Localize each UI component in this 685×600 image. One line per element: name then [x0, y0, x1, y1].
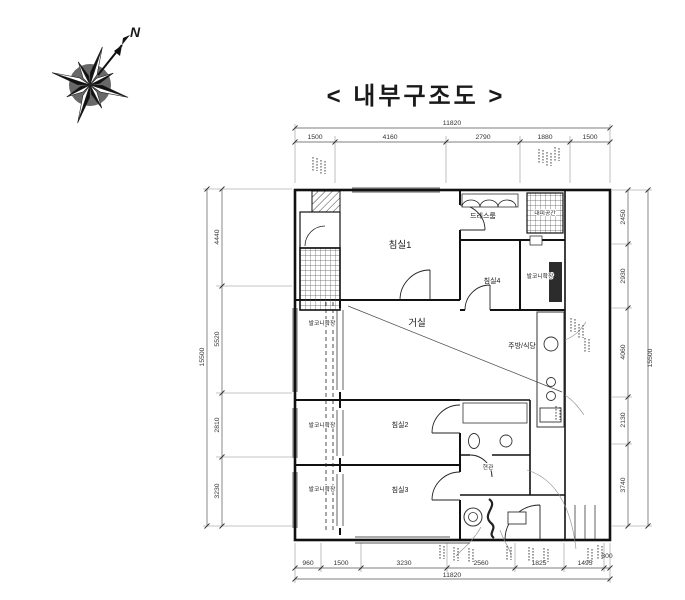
service-shafts — [300, 191, 563, 310]
dimension-lines — [207, 128, 648, 579]
dim-left-seg: 4440 — [214, 229, 221, 244]
balcony-dashed-lines — [326, 302, 333, 533]
page-title: < 내부구조도 > — [327, 83, 506, 110]
dim-top-seg: 2790 — [475, 134, 490, 141]
room-label-bedroom1: 침실1 — [389, 240, 412, 251]
toilet — [469, 434, 480, 449]
dim-right-seg: 4060 — [620, 344, 627, 359]
room-label-balcony-ext-right: 발코니확장 — [527, 272, 554, 280]
door-bedroom2 — [432, 405, 460, 433]
floorplan-page: N < 내부구조도 > 11820 1500 4160 2790 — [0, 0, 685, 600]
steps — [575, 505, 595, 540]
dim-left-total: 15500 — [199, 347, 206, 366]
room-label-kitchen: 주방/식당 — [508, 341, 536, 350]
door-bedroom1 — [400, 270, 430, 300]
wall — [295, 400, 460, 465]
dim-bottom-seg: 300 — [601, 553, 613, 560]
room-label-bedroom4: 침실4 — [484, 276, 501, 285]
pipe — [488, 499, 494, 538]
north-label: N — [130, 24, 141, 40]
dim-left-seg: 3230 — [214, 483, 221, 498]
washer-drum — [469, 513, 478, 522]
elevator-shaft — [300, 248, 340, 310]
fridge — [549, 262, 562, 302]
dim-top-seg: 1500 — [307, 134, 322, 141]
dim-bottom-seg: 1495 — [577, 560, 592, 567]
dim-top-seg: 1500 — [582, 134, 597, 141]
counter-unit — [540, 408, 561, 422]
room-label-dressroom: 드레스룸 — [470, 211, 496, 220]
fixtures — [348, 194, 595, 540]
dim-top: 11820 1500 4160 2790 1880 1500 — [307, 120, 597, 141]
north-arrow-icon: N — [98, 24, 141, 75]
door-bedroom4 — [465, 285, 490, 310]
dim-top-total: 11820 — [443, 120, 462, 127]
utility-cabinet — [508, 512, 526, 524]
sink — [544, 337, 558, 351]
room-label-balcony-ext-bed3: 발코니확장 — [309, 485, 336, 493]
duct — [530, 236, 542, 245]
room-label-balcony-ext-living: 발코니확장 — [309, 319, 336, 327]
dim-right: 15500 2450 2930 4060 2130 3740 — [620, 209, 654, 492]
dimension-ticks — [205, 126, 651, 582]
dim-left: 15500 4440 5520 2810 3230 — [199, 229, 221, 498]
dim-left-seg: 2810 — [214, 417, 221, 432]
room-label-refuge: 대피공간 — [534, 209, 556, 217]
dim-right-seg: 2930 — [620, 268, 627, 283]
dim-right-total: 15500 — [647, 348, 654, 367]
dim-bottom-seg: 1500 — [333, 560, 348, 567]
room-label-living: 거실 — [408, 318, 425, 329]
door-bedroom3 — [432, 472, 460, 500]
dim-right-seg: 2450 — [620, 209, 627, 224]
dim-top-seg: 1880 — [537, 134, 552, 141]
dim-top-seg: 4160 — [382, 134, 397, 141]
dim-right-seg: 2130 — [620, 412, 627, 427]
room-label-balcony-ext-bed2: 발코니확장 — [309, 421, 336, 429]
floorplan-drawing: N < 내부구조도 > 11820 1500 4160 2790 — [0, 0, 685, 600]
elevator-hall — [300, 212, 340, 248]
dim-left-seg: 5520 — [214, 331, 221, 346]
burner — [547, 378, 556, 387]
stair-shaft — [312, 191, 340, 212]
dim-right-seg: 3740 — [620, 477, 627, 492]
bathtub — [463, 403, 527, 423]
washbasin — [500, 435, 512, 447]
burner — [547, 392, 556, 401]
room-label-entrance: 현관 — [483, 463, 494, 471]
compass-rose-icon: N — [40, 24, 141, 135]
dim-bottom-total: 11820 — [443, 572, 462, 579]
dim-bottom-seg: 3230 — [396, 560, 411, 567]
dim-bottom-seg: 2560 — [473, 560, 488, 567]
dim-bottom-seg: 960 — [302, 560, 314, 567]
dim-bottom-seg: 1825 — [531, 560, 546, 567]
room-label-bedroom3: 침실3 — [392, 485, 409, 494]
room-label-bedroom2: 침실2 — [392, 420, 409, 429]
